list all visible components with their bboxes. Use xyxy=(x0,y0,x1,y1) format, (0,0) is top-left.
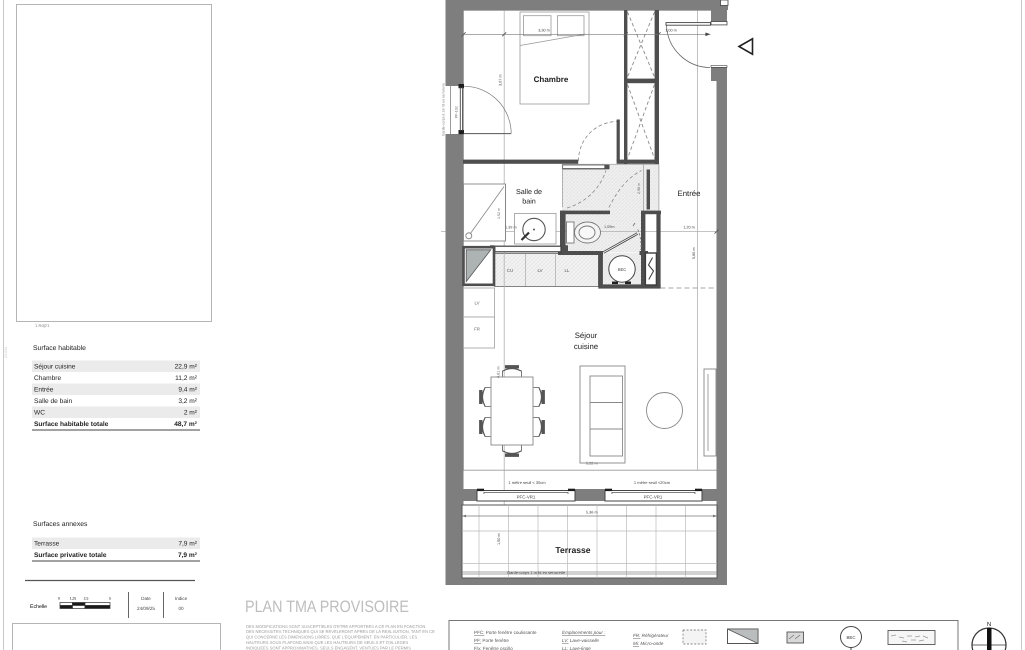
svg-text:Surfaces annexes: Surfaces annexes xyxy=(33,521,88,528)
svg-text:FR: Réfrigérateur: FR: Réfrigérateur xyxy=(633,633,669,638)
svg-text:2 m²: 2 m² xyxy=(184,410,198,417)
svg-text:1 mètre seuil <20cm: 1 mètre seuil <20cm xyxy=(634,480,671,485)
svg-text:48,7 m²: 48,7 m² xyxy=(174,421,198,428)
svg-text:Surface habitable totale: Surface habitable totale xyxy=(34,421,109,428)
svg-text:LV: LV xyxy=(537,268,542,273)
svg-text:1 mètre seuil < 30cm: 1 mètre seuil < 30cm xyxy=(508,480,546,485)
svg-text:Salle de: Salle de xyxy=(516,187,542,196)
svg-text:Entrée: Entrée xyxy=(678,189,701,198)
svg-text:BEC: BEC xyxy=(618,267,627,272)
svg-text:DES MODIFICATIONS SONT SUSCEPT: DES MODIFICATIONS SONT SUSCEPTIBLES D'ET… xyxy=(246,624,425,629)
svg-text:Garde-corps à 1m ht en serrure: Garde-corps à 1m ht en serrurerie xyxy=(442,83,446,136)
svg-text:3,2 m²: 3,2 m² xyxy=(178,398,197,405)
svg-text:N: N xyxy=(987,621,991,628)
svg-text:Terrasse: Terrasse xyxy=(34,541,60,548)
svg-text:Garde-corps 1 m ht en serrurer: Garde-corps 1 m ht en serrurerie xyxy=(507,570,566,575)
svg-text:7,9 m²: 7,9 m² xyxy=(178,552,198,559)
svg-text:Emplacements pour :: Emplacements pour : xyxy=(562,630,606,635)
svg-text:Terrasse: Terrasse xyxy=(555,545,590,555)
svg-text:Surface habitable: Surface habitable xyxy=(33,345,86,352)
svg-text:PF-102: PF-102 xyxy=(455,106,459,118)
svg-text:CU: CU xyxy=(507,268,513,273)
svg-text:LL: Lave-linge: LL: Lave-linge xyxy=(562,646,591,650)
svg-text:PFC: Porte fenêtre coulissante: PFC: Porte fenêtre coulissante xyxy=(474,630,537,635)
svg-text:3,07 m: 3,07 m xyxy=(499,74,503,86)
svg-text:Séjour cuisine: Séjour cuisine xyxy=(34,364,76,371)
svg-text:1,20 m: 1,20 m xyxy=(683,226,695,230)
svg-text:2,5: 2,5 xyxy=(84,597,89,601)
svg-text:F/x: Fenêtre oscillo: F/x: Fenêtre oscillo xyxy=(474,646,513,650)
svg-text:Echelle: Echelle xyxy=(30,604,47,610)
svg-text:BEC: BEC xyxy=(846,635,855,640)
svg-text:24/09/25: 24/09/25 xyxy=(137,606,155,611)
svg-text:cuisine: cuisine xyxy=(574,342,598,351)
svg-text:LL: LL xyxy=(565,268,570,273)
svg-text:LV: LV xyxy=(474,301,479,306)
svg-text:QUI CONCERNE LES DIMENSIONS LI: QUI CONCERNE LES DIMENSIONS LIBRES, QUE … xyxy=(246,635,418,640)
svg-text:21-034: 21-034 xyxy=(4,347,8,358)
svg-text:Salle de bain: Salle de bain xyxy=(34,398,72,405)
svg-text:0: 0 xyxy=(58,597,60,601)
svg-text:22,9 m²: 22,9 m² xyxy=(175,364,198,371)
svg-text:Date: Date xyxy=(141,596,151,601)
svg-text:Chambre: Chambre xyxy=(34,375,61,382)
svg-text:4,61 m: 4,61 m xyxy=(497,366,501,378)
svg-text:1,00 m: 1,00 m xyxy=(665,29,677,33)
svg-text:Surface privative totale: Surface privative totale xyxy=(34,552,107,559)
svg-text:WC: WC xyxy=(34,410,45,417)
svg-text:Séjour: Séjour xyxy=(575,331,598,340)
svg-text:1,25: 1,25 xyxy=(70,597,77,601)
svg-text:00: 00 xyxy=(178,606,184,611)
svg-text:bain: bain xyxy=(522,197,536,206)
svg-text:1,09m: 1,09m xyxy=(604,225,615,229)
svg-text:7,9 m²: 7,9 m² xyxy=(178,541,197,548)
svg-text:LV: Lave-vaisselle: LV: Lave-vaisselle xyxy=(562,638,599,643)
svg-text:PLAN TMA PROVISOIRE: PLAN TMA PROVISOIRE xyxy=(245,598,409,616)
svg-text:DES NECESSITES TECHNIQUES QUI: DES NECESSITES TECHNIQUES QUI SE REVELER… xyxy=(246,629,435,634)
svg-text:1,39 m: 1,39 m xyxy=(505,226,517,230)
svg-text:HAUTEURS SOUS PLAFOND AINSI QU: HAUTEURS SOUS PLAFOND AINSI QUE LES HAUT… xyxy=(246,640,408,645)
svg-text:PFC-VR1: PFC-VR1 xyxy=(517,495,536,500)
svg-text:5: 5 xyxy=(109,597,111,601)
svg-text:FR: FR xyxy=(474,327,480,332)
svg-text:5,22 m: 5,22 m xyxy=(586,462,598,466)
svg-text:INDIQUEES SONT APPROXIMATIVES.: INDIQUEES SONT APPROXIMATIVES. SEULS ENG… xyxy=(246,645,411,650)
svg-text:5,36 m: 5,36 m xyxy=(586,511,598,515)
svg-text:2,98 m: 2,98 m xyxy=(637,183,641,194)
svg-text:Indice: Indice xyxy=(175,596,188,601)
svg-text:1,50 m: 1,50 m xyxy=(497,533,501,545)
svg-text:Mi: Micro-onde: Mi: Micro-onde xyxy=(633,641,664,646)
svg-text:9,4 m²: 9,4 m² xyxy=(178,387,197,394)
svg-text:1,52 m: 1,52 m xyxy=(497,208,501,219)
svg-text:5,86 m: 5,86 m xyxy=(692,247,696,259)
svg-text:PF: Porte fenêtre: PF: Porte fenêtre xyxy=(474,638,509,643)
svg-text:PFC-VR1: PFC-VR1 xyxy=(644,495,663,500)
svg-text:11,2 m²: 11,2 m² xyxy=(175,375,198,382)
svg-text:1.Rdj21: 1.Rdj21 xyxy=(35,323,50,328)
svg-text:Chambre: Chambre xyxy=(534,75,569,84)
svg-text:3,30 m: 3,30 m xyxy=(538,29,550,33)
svg-text:Entrée: Entrée xyxy=(34,387,54,394)
